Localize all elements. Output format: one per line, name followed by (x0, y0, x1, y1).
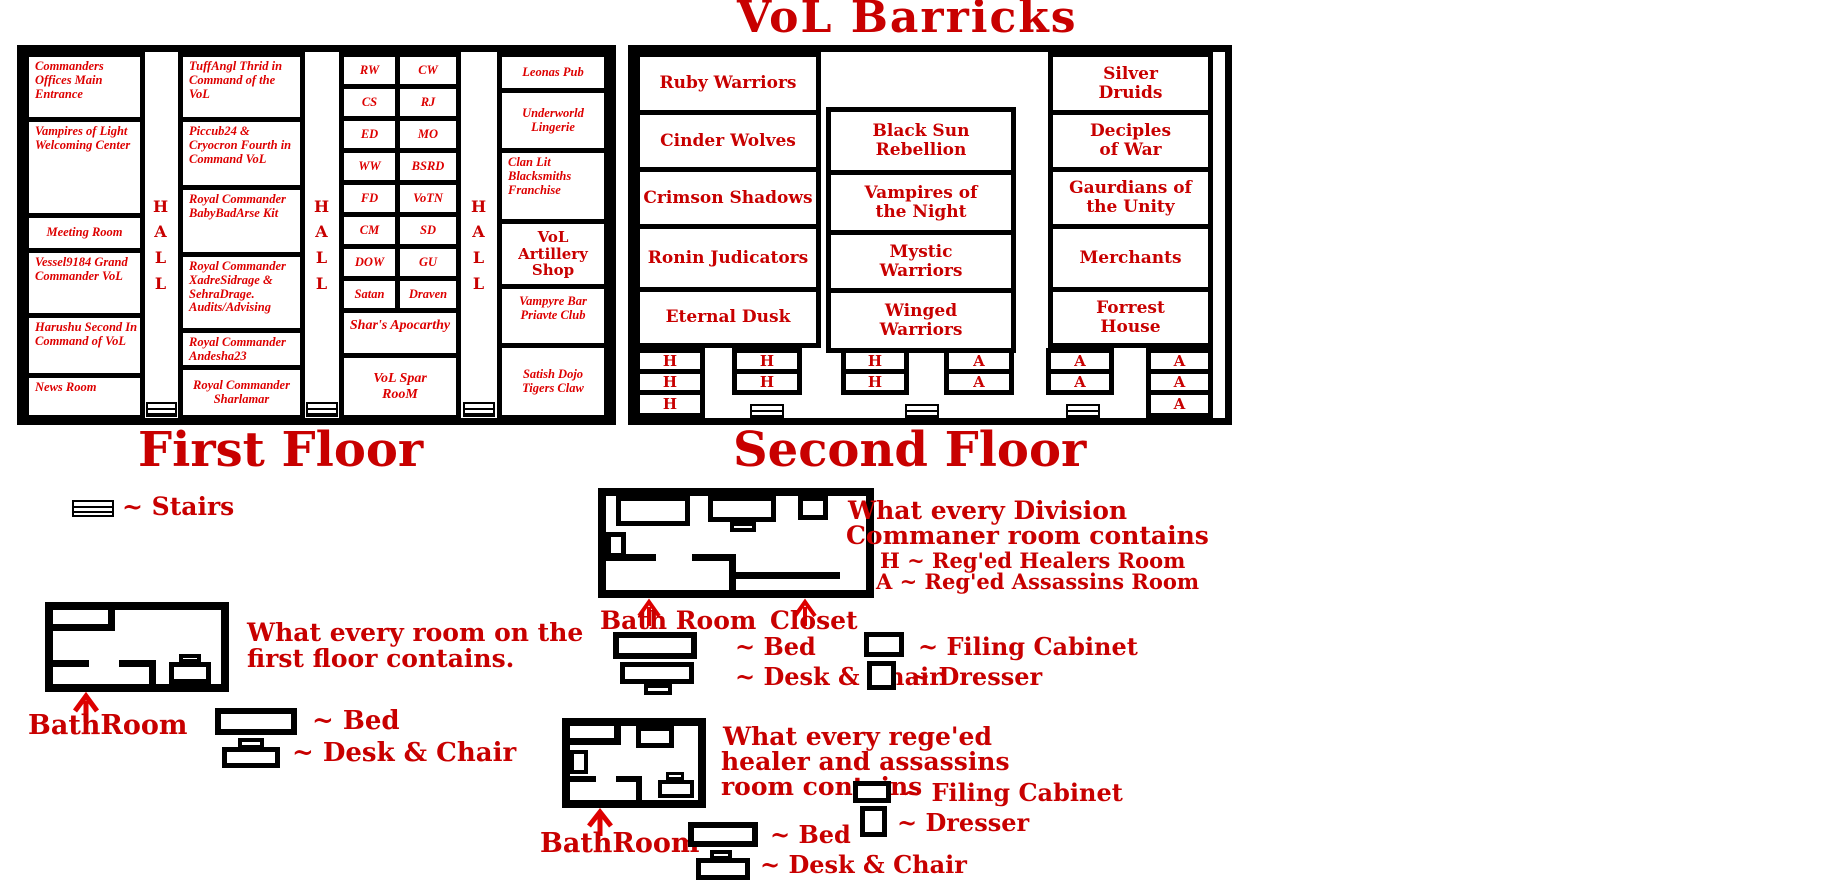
closet-wall (614, 726, 621, 745)
stairs-legend-icon (72, 500, 114, 517)
room-forrest-house: Forrest House (1048, 287, 1213, 348)
healer-caption-line3: room contains (721, 772, 922, 801)
room-ruby-warriors: Ruby Warriors (635, 52, 821, 115)
room-third-in-command: TuffAngl Thrid in Command of the VoL (178, 52, 305, 122)
dresser-icon (860, 806, 887, 837)
room-underworld-lingerie: Underworld Lingerie (497, 88, 609, 153)
desk-chair-icon (696, 850, 750, 880)
room-silver-druids: Silver Druids (1048, 52, 1213, 115)
filing-cabinet-icon (853, 781, 891, 803)
healer-bed-label: ~ Bed (770, 820, 851, 849)
room-leonas-pub: Leonas Pub (497, 52, 609, 93)
closet-wall (736, 572, 840, 579)
firstfloor-bed-label: ~ Bed (312, 706, 400, 736)
room-artillery-shop: VoL Artillery Shop (497, 219, 609, 289)
hall-1: HALL (152, 185, 169, 305)
bathroom-wall (729, 554, 736, 590)
chair-shape (730, 522, 756, 532)
room-assassin-2: A (944, 369, 1014, 395)
closet-wall (108, 610, 115, 631)
bathroom-wall (53, 660, 89, 667)
hall-3: HALL (470, 185, 487, 305)
room-eternal-dusk: Eternal Dusk (635, 287, 821, 348)
room-grand-commander: Vessel9184 Grand Commander VoL (24, 248, 145, 318)
stairs-icon (306, 402, 338, 417)
commander-bed-label: ~ Bed (735, 632, 816, 661)
stairs-icon (146, 402, 177, 417)
room-healer-3: H (635, 390, 705, 418)
healer-room-sketch (562, 718, 706, 808)
room-second-in-command: Harushu Second In Command of VoL (24, 313, 145, 378)
room-vol-welcoming-center: Vampires of Light Welcoming Center (24, 117, 145, 218)
room-blacksmiths-franchise: Clan Lit Blacksmiths Franchise (497, 148, 609, 224)
room-meeting-room: Meeting Room (24, 213, 145, 253)
firstfloor-caption-line2: first floor contains. (247, 644, 514, 673)
bathroom-wall (570, 776, 596, 782)
dresser-shape (798, 496, 828, 520)
closet-wall (53, 624, 113, 631)
commander-room-sketch (598, 488, 874, 598)
room-gaurdians-of-the-unity: Gaurdians of the Unity (1048, 167, 1213, 229)
bathroom-wall (149, 660, 156, 684)
room-shars-apocarthy: Shar's Apocarthy (339, 308, 461, 358)
bathroom-wall (606, 554, 656, 561)
desk-shape (169, 662, 211, 684)
commander-caption-line2: Commaner room contains (846, 521, 1209, 550)
room-commander-xadresidrage: Royal Commander XadreSidrage & SehraDrag… (178, 252, 305, 333)
bed-shape (616, 496, 690, 526)
room-deciples-of-war: Deciples of War (1048, 110, 1213, 172)
room-crimson-shadows: Crimson Shadows (635, 167, 821, 229)
bed-icon (688, 822, 758, 847)
room-vampyre-bar: Vampyre Bar Priavte Club (497, 284, 609, 348)
filing-cabinet-shape (570, 750, 588, 774)
healer-bathroom-label: BathRoom (540, 828, 699, 859)
dresser-shape (636, 726, 674, 748)
room-commander-sharlamar: Royal Commander Sharlamar (178, 365, 305, 420)
room-merchants: Merchants (1048, 224, 1213, 292)
second-floor-heading: Second Floor (733, 422, 1086, 478)
vol-barricks-map: { "title": "VoL Barricks", "palette": {"… (0, 0, 1844, 886)
firstfloor-desk-label: ~ Desk & Chair (292, 738, 516, 768)
stairs-legend-label: ~ Stairs (122, 492, 234, 521)
room-commanders-offices: Commanders Offices Main Entrance (24, 52, 145, 122)
commander-bathroom-label: Bath Room (600, 606, 756, 635)
room-black-sun-rebellion: Black Sun Rebellion (826, 107, 1016, 175)
room-commander-andesha23: Royal Commander Andesha23 (178, 328, 305, 370)
bed-icon (215, 708, 297, 735)
stairs-icon (1066, 404, 1100, 419)
stairs-icon (905, 404, 939, 419)
stairs-icon (463, 402, 495, 417)
commander-dresser-label: ~ Dresser (910, 662, 1042, 691)
room-healer-5: H (732, 369, 802, 395)
room-commander-babybadarse: Royal Commander BabyBadArse Kit (178, 185, 305, 257)
page-title: VoL Barricks (737, 0, 1078, 43)
healer-desk-label: ~ Desk & Chair (760, 850, 967, 879)
room-ronin-judicators: Ronin Judicators (635, 224, 821, 292)
filing-cabinet-icon (864, 632, 904, 657)
healer-dresser-label: ~ Dresser (897, 808, 1029, 837)
assassin-key-label: A ~ Reg'ed Assassins Room (876, 569, 1199, 594)
room-winged-warriors: Winged Warriors (826, 288, 1016, 353)
room-mystic-warriors: Mystic Warriors (826, 230, 1016, 293)
stairs-icon (750, 404, 784, 419)
chair-shape (179, 654, 201, 663)
room-cinder-wolves: Cinder Wolves (635, 110, 821, 172)
room-vampires-of-the-night: Vampires of the Night (826, 170, 1016, 235)
room-assassin-4: A (1046, 369, 1114, 395)
desk-shape (708, 496, 776, 522)
firstfloor-caption-line1: What every room on the (247, 618, 583, 647)
desk-shape (658, 780, 694, 798)
room-healer-7: H (841, 369, 909, 395)
chair-shape (666, 772, 684, 780)
commander-filing-label: ~ Filing Cabinet (918, 632, 1138, 661)
dresser-icon (867, 661, 896, 690)
firstfloor-bathroom-label: BathRoom (28, 710, 187, 741)
desk-chair-icon (620, 662, 694, 696)
room-fourth-in-command: Piccub24 & Cryocron Fourth in Command Vo… (178, 117, 305, 190)
room-assassin-7: A (1146, 390, 1213, 418)
first-floor-room-sketch (45, 602, 229, 692)
hall-2: HALL (313, 185, 330, 305)
closet-wall (570, 738, 618, 745)
healer-filing-label: ~ Filing Cabinet (903, 778, 1123, 807)
bed-icon (613, 632, 697, 659)
first-floor-heading: First Floor (138, 422, 423, 478)
room-news-room: News Room (24, 373, 145, 420)
bathroom-wall (636, 776, 642, 800)
commander-closet-label: Closet (770, 606, 858, 635)
desk-chair-icon (222, 738, 280, 768)
room-satish-dojo: Satish Dojo Tigers Claw (497, 343, 609, 420)
room-vol-spar-room: VoL Spar RooM (339, 353, 461, 420)
